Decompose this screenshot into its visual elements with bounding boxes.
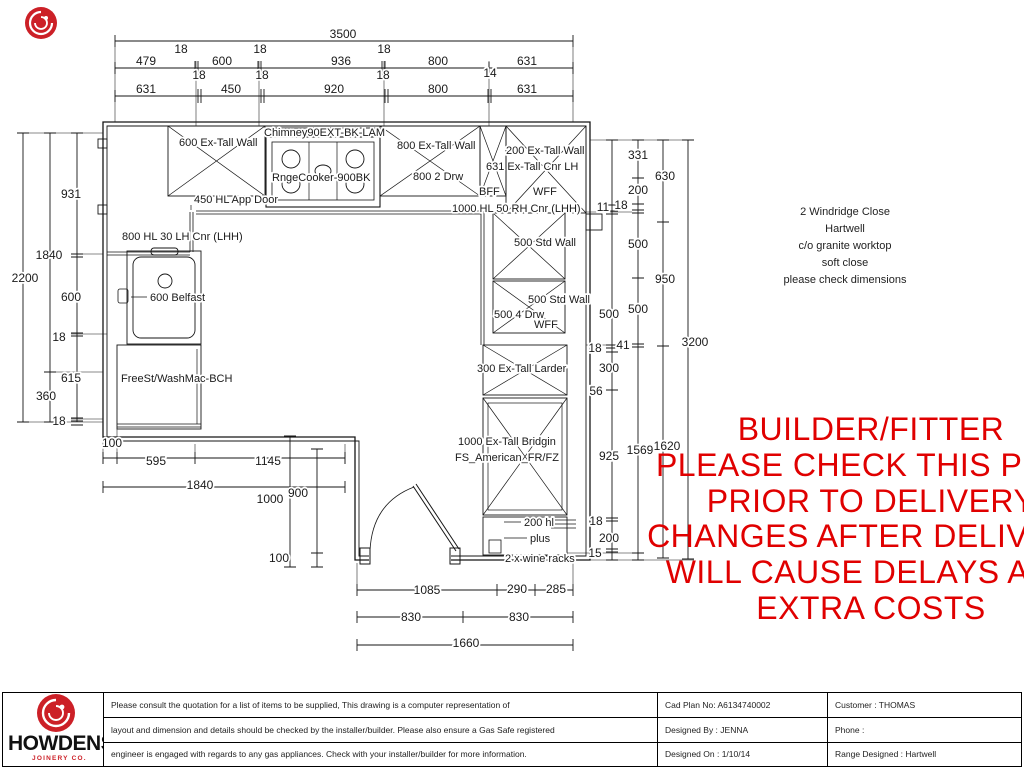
unit-label: 1000 Ex-Tall Bridgin bbox=[458, 436, 556, 448]
unit-label: 450 HL App Door bbox=[194, 194, 278, 206]
dimension-label: 1145 bbox=[255, 454, 281, 468]
warning-line: BUILDER/FITTER bbox=[738, 411, 1005, 448]
dimension-label: 18 bbox=[192, 68, 206, 82]
phone: Phone : bbox=[827, 717, 1021, 741]
dimension-label: 300 bbox=[599, 361, 619, 375]
dimension-label: 830 bbox=[509, 610, 529, 624]
unit-label: 800 2 Drw bbox=[413, 171, 463, 183]
project-notes: 2 Windridge Close Hartwell c/o granite w… bbox=[745, 204, 945, 289]
dimension-label: 14 bbox=[483, 66, 497, 80]
unit-800-ex-tall-wall bbox=[380, 126, 480, 196]
dimension-label: 630 bbox=[655, 169, 675, 183]
dimension-label: 450 bbox=[221, 82, 241, 96]
dimension-label: 100 bbox=[269, 551, 289, 565]
dimension-label: 18 bbox=[174, 42, 188, 56]
disclaimer-line: layout and dimension and details should … bbox=[103, 717, 657, 741]
wall-pier bbox=[586, 214, 602, 230]
dimension-label: 920 bbox=[324, 82, 344, 96]
range-designed: Range Designed : Hartwell bbox=[827, 742, 1021, 766]
dimension-label: 830 bbox=[401, 610, 421, 624]
dimension-label: 18 bbox=[614, 198, 628, 212]
dimension-label: 800 bbox=[428, 82, 448, 96]
dimension-label: 615 bbox=[61, 371, 81, 385]
unit-label: FS_American_FR/FZ bbox=[455, 452, 559, 464]
dimension-label: 18 bbox=[52, 330, 66, 344]
unit-label: RngeCooker-900BK bbox=[272, 172, 371, 184]
dimension-label: 1840 bbox=[187, 478, 214, 492]
unit-label: BFF bbox=[479, 186, 500, 198]
dimension-label: 1840 bbox=[36, 248, 63, 262]
note-line: Hartwell bbox=[745, 221, 945, 238]
disclaimer-line: Please consult the quotation for a list … bbox=[103, 693, 657, 717]
unit-label: 1000 HL 50 RH Cnr (LHH) bbox=[452, 203, 581, 215]
unit-label: 600 Belfast bbox=[150, 292, 205, 304]
unit-label: FreeSt/WashMac-BCH bbox=[121, 373, 233, 385]
unit-label: 500 Std Wall bbox=[514, 237, 576, 249]
dimension-label: 600 bbox=[61, 290, 81, 304]
dimension-label: 500 bbox=[628, 302, 648, 316]
unit-label: 2 x wine racks bbox=[505, 553, 575, 565]
warning-line: CHANGES AFTER DELIVERY bbox=[647, 518, 1024, 555]
dimension-label: 18 bbox=[253, 42, 267, 56]
note-line: c/o granite worktop bbox=[745, 238, 945, 255]
dimension-label: 950 bbox=[655, 272, 675, 286]
unit-label: 631 Ex-Tall Cnr LH bbox=[486, 161, 578, 173]
dimension-label: 1569 bbox=[627, 443, 654, 457]
designed-on: Designed On : 1/10/14 bbox=[657, 742, 827, 766]
dimension-label: 285 bbox=[546, 582, 566, 596]
disclaimer-line: engineer is engaged with regards to any … bbox=[103, 742, 657, 766]
dimension-label: 595 bbox=[146, 454, 166, 468]
dimension-label: 100 bbox=[102, 436, 122, 450]
logo-dot bbox=[60, 705, 65, 710]
dimension-label: 18 bbox=[588, 341, 602, 355]
dimension-label: 1660 bbox=[453, 636, 480, 650]
unit-label: 600 Ex-Tall Wall bbox=[179, 137, 257, 149]
dimension-label: 18 bbox=[376, 68, 390, 82]
title-block: HOWDENS JOINERY CO. Please consult the q… bbox=[2, 692, 1022, 767]
unit-label: 200 hl bbox=[524, 517, 554, 529]
dimension-label: 11 bbox=[597, 200, 610, 214]
dimension-label: 2200 bbox=[12, 271, 39, 285]
entrance-door bbox=[370, 484, 459, 551]
unit-label: Chimney90EXT-BK-LAM bbox=[264, 127, 385, 139]
dimension-label: 931 bbox=[61, 187, 81, 201]
room-walls bbox=[98, 122, 602, 564]
dimension-label: 500 bbox=[599, 307, 619, 321]
dimension-label: 631 bbox=[517, 54, 537, 68]
note-line: please check dimensions bbox=[745, 272, 945, 289]
sink-tap bbox=[151, 248, 178, 255]
dimension-label: 18 bbox=[255, 68, 269, 82]
dimension-label: 631 bbox=[136, 82, 156, 96]
door-opening bbox=[369, 551, 451, 563]
dimension-label: 479 bbox=[136, 54, 156, 68]
unit-label: WFF bbox=[533, 186, 557, 198]
dimension-label: 18 bbox=[377, 42, 391, 56]
washing-machine bbox=[117, 345, 201, 429]
dimension-label: 925 bbox=[599, 449, 619, 463]
warning-line: PLEASE CHECK THIS PLAN bbox=[656, 447, 1024, 484]
dimension-label: 600 bbox=[212, 54, 232, 68]
dimension-label: 800 bbox=[428, 54, 448, 68]
dimension-label: 500 bbox=[628, 237, 648, 251]
dimension-label: 360 bbox=[36, 389, 56, 403]
unit-label: 800 HL 30 LH Cnr (LHH) bbox=[122, 231, 243, 243]
unit-label: 800 Ex-Tall Wall bbox=[397, 140, 475, 152]
brand-name: HOWDENS bbox=[8, 732, 103, 755]
kitchen-units bbox=[107, 126, 586, 555]
customer: Customer : THOMAS bbox=[827, 693, 1021, 717]
dimension-label: 290 bbox=[507, 582, 527, 596]
dimension-label: 18 bbox=[52, 414, 66, 428]
dimension-label: 1000 bbox=[257, 492, 284, 506]
warning-line: EXTRA COSTS bbox=[756, 590, 986, 627]
unit-label: 200 Ex-Tall Wall bbox=[506, 145, 584, 157]
dimension-label: 3500 bbox=[330, 27, 357, 41]
note-line: soft close bbox=[745, 255, 945, 272]
designed-by: Designed By : JENNA bbox=[657, 717, 827, 741]
dimension-label: 1085 bbox=[414, 583, 441, 597]
dimension-label: 15 bbox=[588, 546, 602, 560]
howdens-logo: HOWDENS JOINERY CO. bbox=[3, 693, 103, 766]
dimension-label: 3200 bbox=[682, 335, 709, 349]
unit-label: 300 Ex-Tall Larder bbox=[477, 363, 567, 375]
brand-subtitle: JOINERY CO. bbox=[32, 755, 87, 762]
cad-plan-no: Cad Plan No: A6134740002 bbox=[657, 693, 827, 717]
note-line: 2 Windridge Close bbox=[745, 204, 945, 221]
dimension-label: 41 bbox=[616, 338, 630, 352]
dimension-label: 200 bbox=[628, 183, 648, 197]
dimension-label: 631 bbox=[517, 82, 537, 96]
dimension-label: 18 bbox=[589, 514, 603, 528]
dimension-label: 200 bbox=[599, 531, 619, 545]
warning-line: PRIOR TO DELIVERY bbox=[707, 483, 1024, 520]
unit-label: WFF bbox=[534, 319, 558, 331]
warning-line: WILL CAUSE DELAYS AND bbox=[666, 554, 1024, 591]
dimension-label: 56 bbox=[589, 384, 603, 398]
unit-label: plus bbox=[530, 533, 551, 545]
unit-label: 500 Std Wall bbox=[528, 294, 590, 306]
dimension-label: 900 bbox=[288, 486, 308, 500]
dimension-label: 331 bbox=[628, 148, 648, 162]
dimension-label: 936 bbox=[331, 54, 351, 68]
